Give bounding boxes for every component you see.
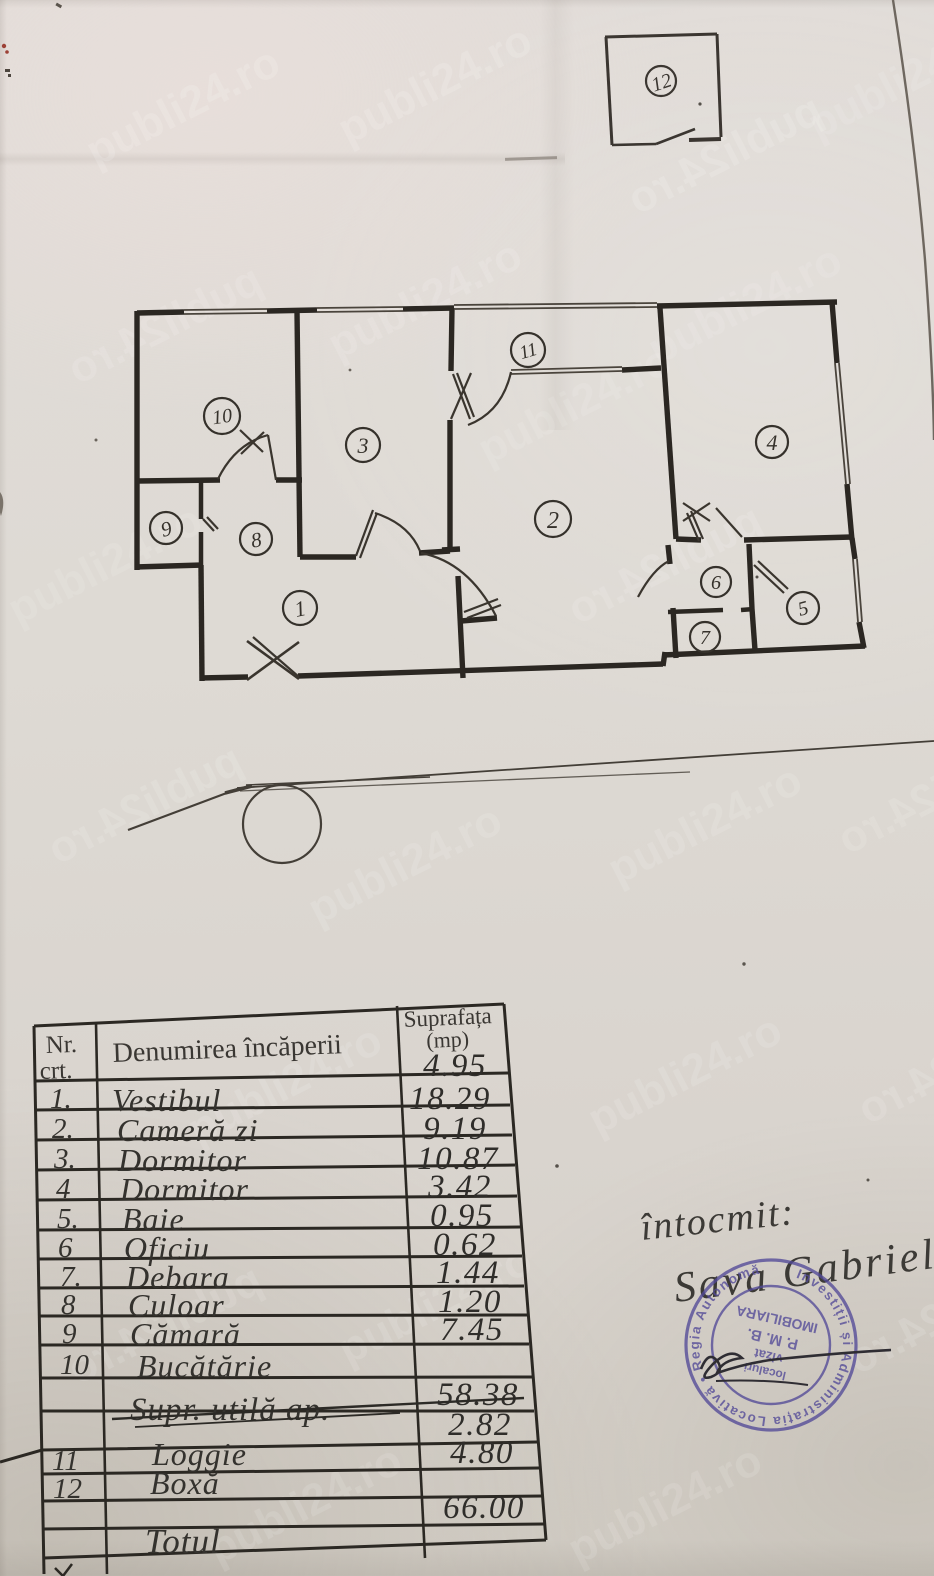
svg-text:1: 1 — [292, 595, 308, 622]
svg-text:Bucătărie: Bucătărie — [137, 1348, 272, 1384]
svg-text:întocmit:: întocmit: — [639, 1191, 798, 1249]
svg-text:9: 9 — [62, 1318, 77, 1350]
svg-text:3.: 3. — [53, 1143, 76, 1175]
svg-text:Denumirea încăperii: Denumirea încăperii — [112, 1029, 343, 1069]
svg-text:8: 8 — [61, 1289, 76, 1321]
svg-text:9: 9 — [158, 516, 174, 542]
svg-text:8: 8 — [249, 527, 264, 553]
svg-text:10: 10 — [211, 405, 234, 430]
svg-text:crt.: crt. — [39, 1057, 73, 1085]
svg-text:4: 4 — [767, 430, 778, 455]
svg-text:4: 4 — [56, 1173, 71, 1205]
svg-text:7: 7 — [700, 627, 711, 649]
svg-text:4.80: 4.80 — [450, 1435, 514, 1471]
svg-text:11: 11 — [517, 339, 540, 364]
svg-text:3: 3 — [357, 433, 369, 458]
svg-text:2.: 2. — [52, 1113, 74, 1145]
svg-text:2: 2 — [547, 508, 559, 534]
svg-text:5.: 5. — [57, 1203, 79, 1235]
svg-text:Totul: Totul — [145, 1522, 221, 1561]
svg-text:6: 6 — [711, 572, 721, 594]
svg-text:Nr.: Nr. — [45, 1031, 77, 1059]
svg-text:12: 12 — [53, 1473, 82, 1505]
svg-text:Boxă: Boxă — [150, 1465, 220, 1501]
svg-text:5: 5 — [796, 597, 811, 621]
svg-text:7.45: 7.45 — [440, 1312, 504, 1348]
svg-text:4.95: 4.95 — [423, 1048, 487, 1084]
svg-text:1.: 1. — [50, 1083, 72, 1115]
svg-text:66.00: 66.00 — [443, 1490, 525, 1526]
svg-text:10: 10 — [60, 1349, 90, 1381]
svg-text:6: 6 — [58, 1232, 73, 1264]
svg-text:Cămară: Cămară — [130, 1316, 241, 1352]
